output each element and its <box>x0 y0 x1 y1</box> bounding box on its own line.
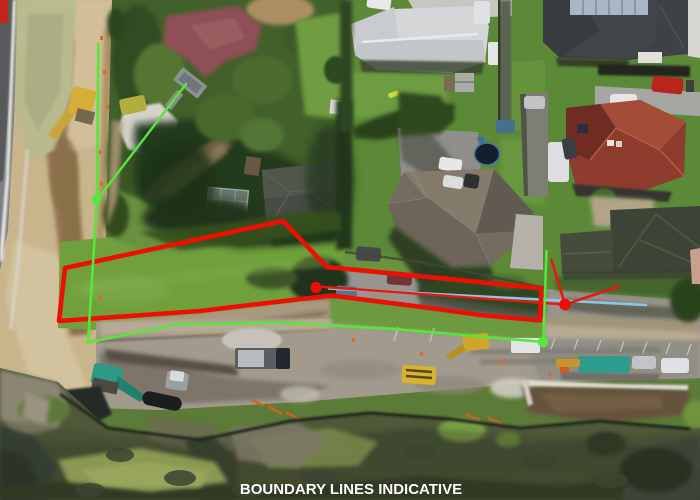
svg-text:BOUNDARY LINES INDICATIVE: BOUNDARY LINES INDICATIVE <box>240 481 462 498</box>
